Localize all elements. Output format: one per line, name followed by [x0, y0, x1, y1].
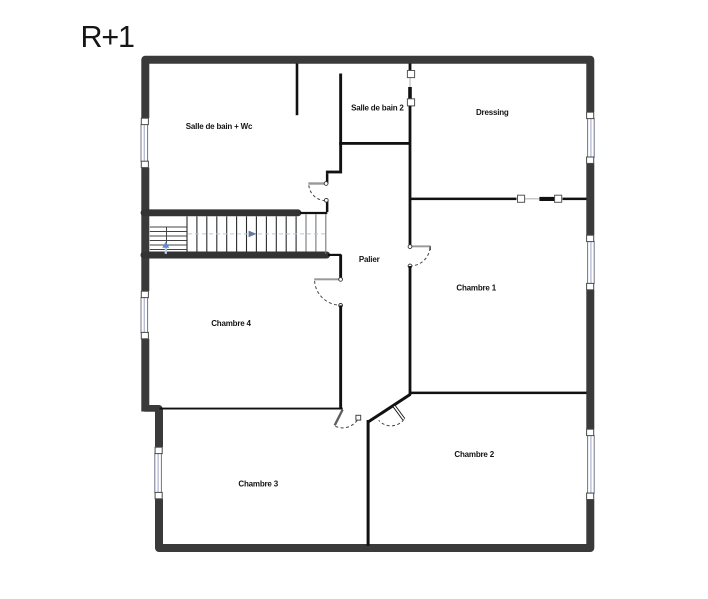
svg-text:Chambre 4: Chambre 4 [211, 319, 251, 328]
svg-text:Chambre 1: Chambre 1 [456, 284, 496, 293]
svg-text:Palier: Palier [359, 255, 380, 264]
svg-text:Dressing: Dressing [476, 108, 509, 117]
svg-text:R+1: R+1 [81, 20, 134, 54]
svg-text:Salle de bain 2: Salle de bain 2 [351, 103, 404, 112]
svg-text:Chambre 3: Chambre 3 [238, 480, 278, 489]
svg-text:Chambre 2: Chambre 2 [454, 450, 494, 459]
svg-text:Salle de bain + Wc: Salle de bain + Wc [186, 122, 253, 131]
